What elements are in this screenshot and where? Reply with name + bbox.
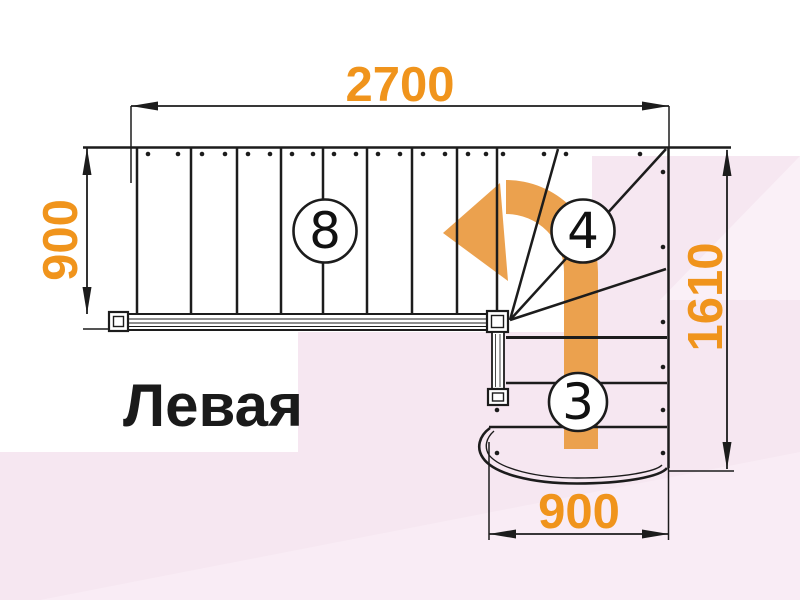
left-newel-post bbox=[109, 312, 128, 331]
stair-plan-drawing bbox=[0, 0, 800, 600]
circle-winders bbox=[552, 200, 615, 263]
lower-newel-post bbox=[488, 389, 508, 405]
upper-stringer bbox=[110, 314, 492, 330]
lower-stringer bbox=[492, 332, 504, 389]
background-shapes bbox=[0, 156, 800, 600]
corner-newel-post bbox=[487, 311, 508, 332]
stair-plan: 2700 900 1610 900 8 4 3 Левая bbox=[0, 0, 800, 600]
circle-lower-flight bbox=[549, 373, 607, 431]
circle-upper-flight bbox=[294, 200, 357, 263]
